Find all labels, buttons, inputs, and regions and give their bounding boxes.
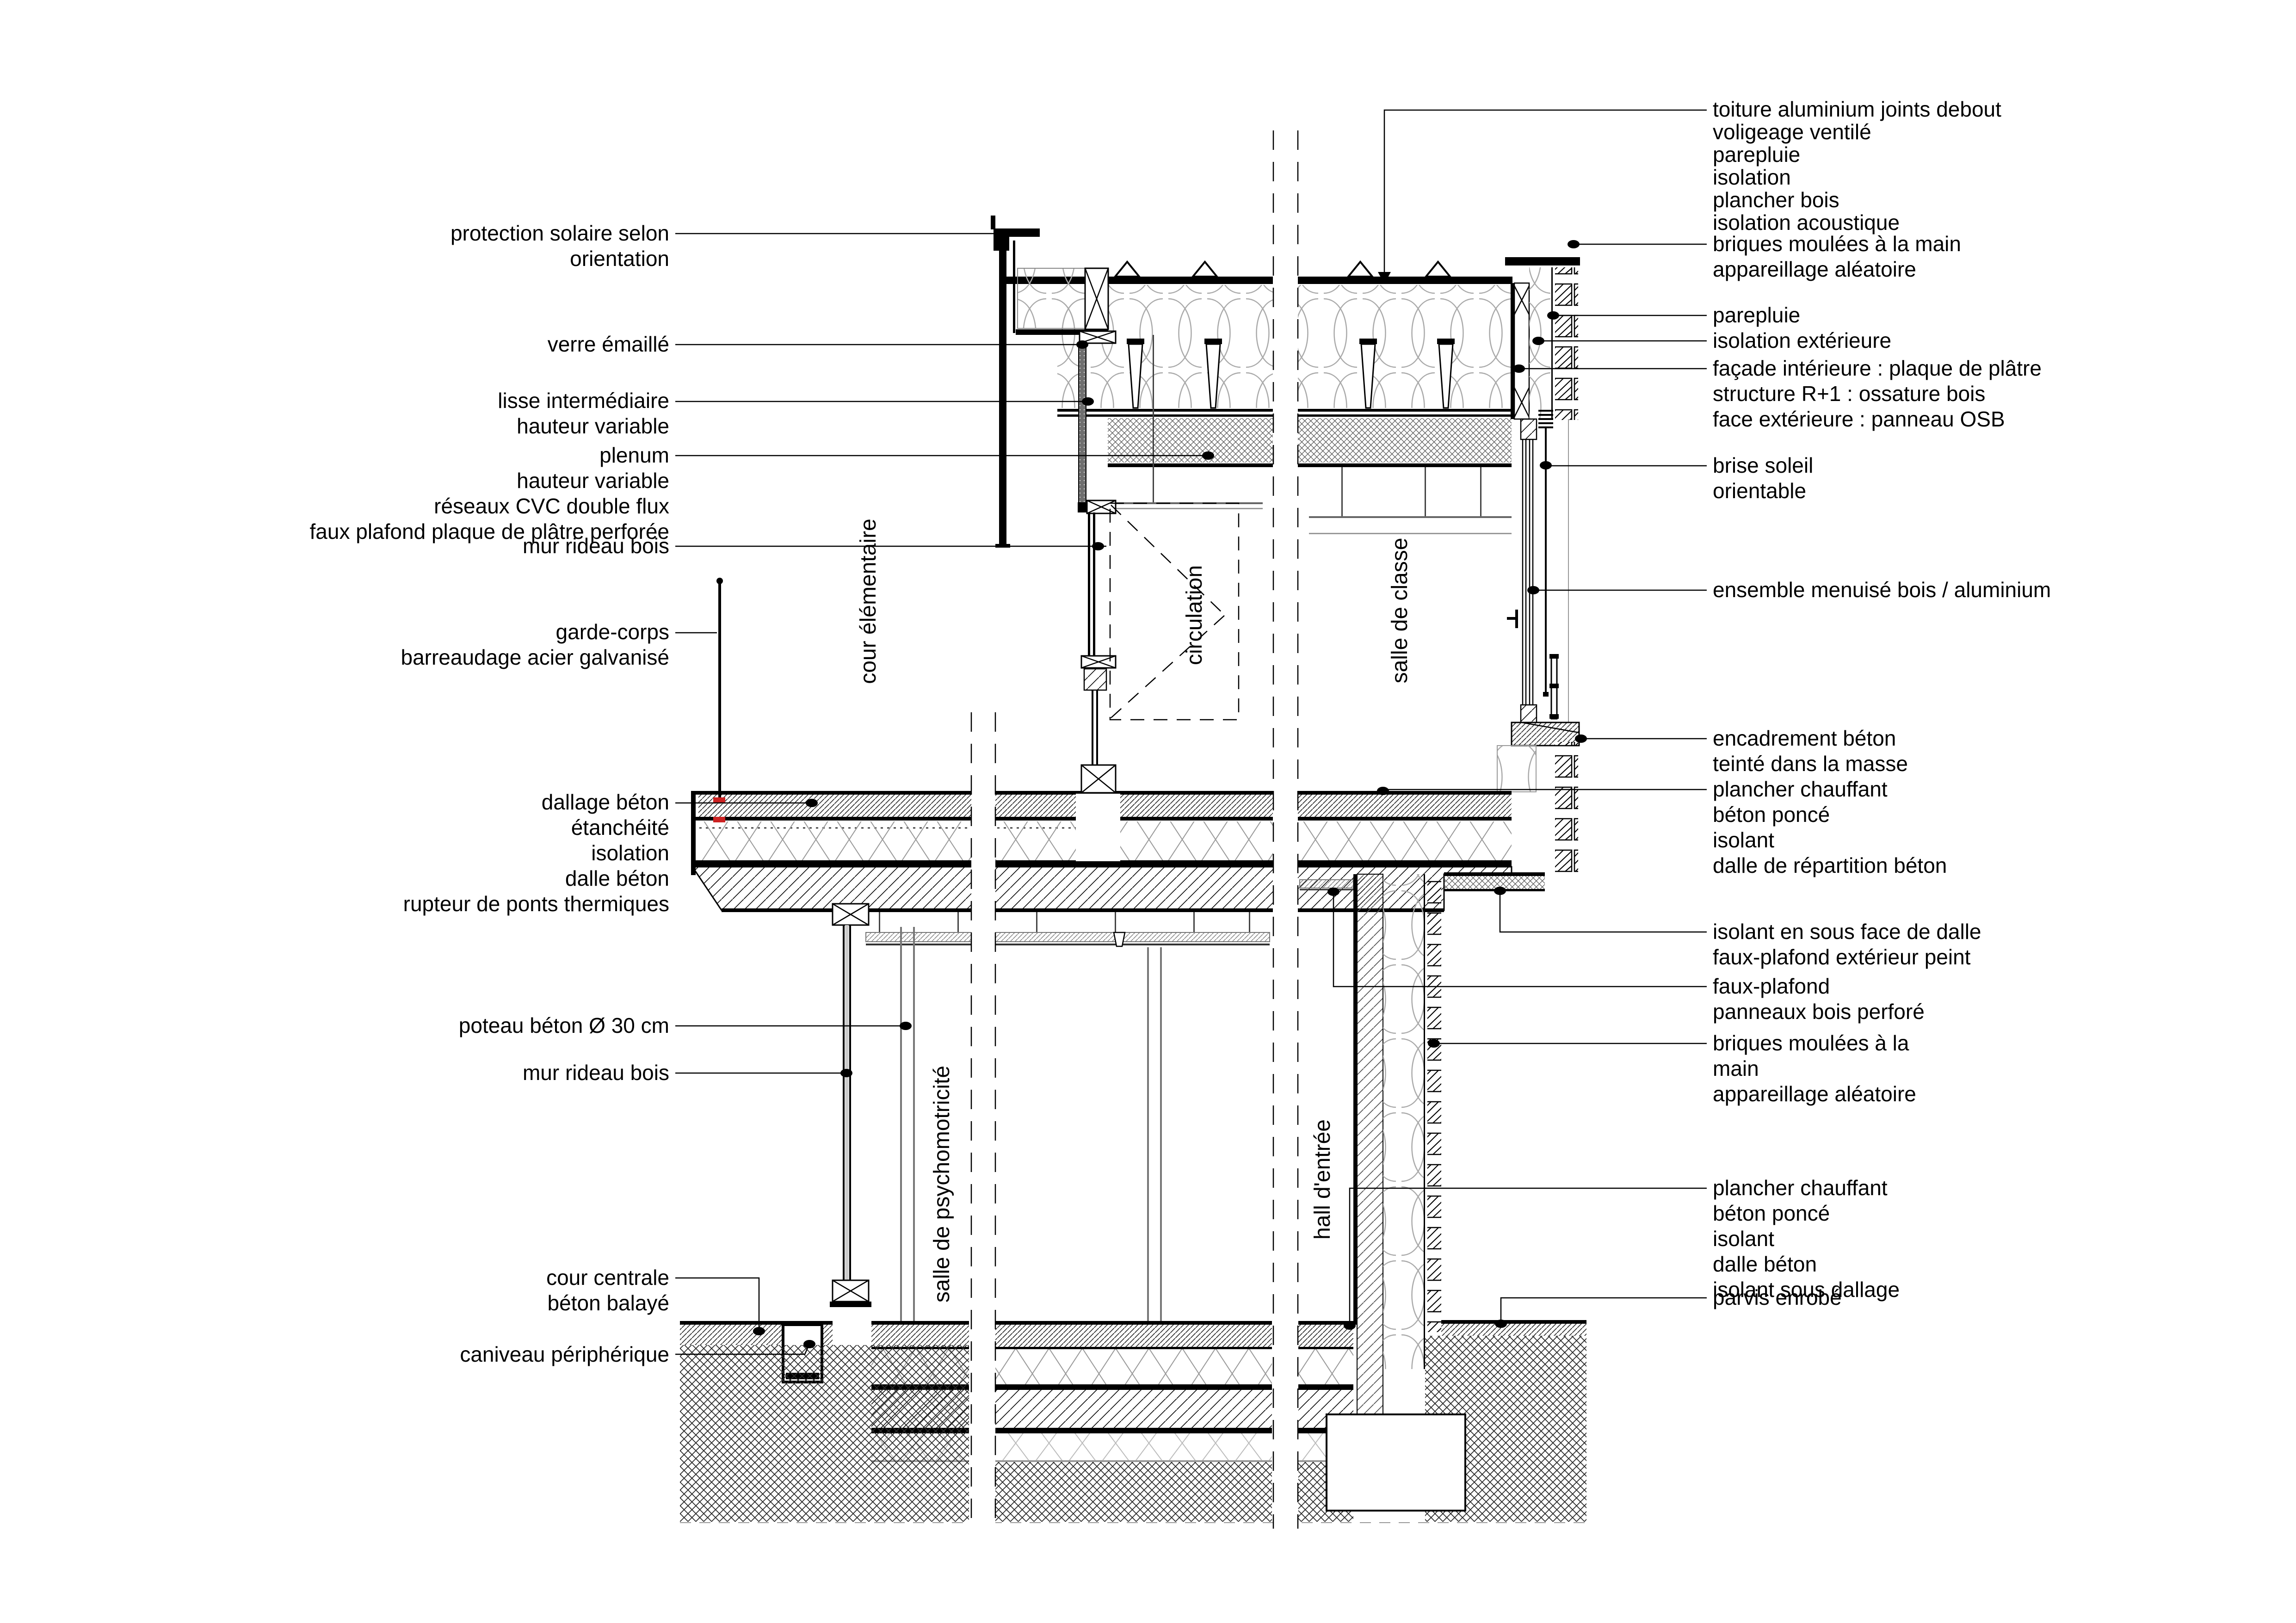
annotation-parepluie: parepluie bbox=[1713, 303, 1800, 327]
circulation-zone bbox=[1110, 503, 1239, 720]
annotation-line: briques moulées à la main bbox=[1713, 232, 1961, 256]
section-drawing bbox=[680, 130, 1586, 1529]
annotation-plancher-rdc: plancher chauffantbéton poncéisolantdall… bbox=[1713, 1176, 1900, 1302]
annotation-line: dalle de répartition béton bbox=[1713, 853, 1947, 877]
annotation-briques-haut: briques moulées à la mainappareillage al… bbox=[1713, 232, 1961, 281]
annotation-line: béton poncé bbox=[1713, 1201, 1830, 1225]
annotation-line: parepluie bbox=[1713, 303, 1800, 327]
room-label-circulation: circulation bbox=[1182, 565, 1207, 665]
annotation-line: caniveau périphérique bbox=[460, 1342, 669, 1366]
room-label-salle-de-psychomotricite: salle de psychomotricité bbox=[930, 1066, 954, 1302]
annotation-line: hauteur variable bbox=[517, 414, 669, 438]
annotation-line: protection solaire selon bbox=[451, 221, 669, 245]
annotation-line: dalle béton bbox=[565, 866, 669, 890]
annotation-line: garde-corps bbox=[556, 620, 669, 644]
annotation-protection-solaire: protection solaire selonorientation bbox=[451, 221, 669, 271]
ground-curtain-wall bbox=[830, 904, 871, 1307]
annotation-line: plancher bois bbox=[1713, 188, 1839, 212]
parvis-surface bbox=[1441, 1320, 1586, 1336]
annotation-isolation-ext: isolation extérieure bbox=[1713, 328, 1891, 352]
annotation-line: orientable bbox=[1713, 479, 1806, 503]
annotation-cour-centrale: cour centralebéton balayé bbox=[546, 1265, 669, 1315]
annotation-line: dallage béton bbox=[542, 790, 669, 814]
annotation-lisse-intermediaire: lisse intermédiairehauteur variable bbox=[498, 389, 669, 438]
annotation-line: isolant en sous face de dalle bbox=[1713, 919, 1981, 944]
annotation-line: lisse intermédiaire bbox=[498, 389, 669, 413]
annotation-line: faux-plafond extérieur peint bbox=[1713, 945, 1971, 969]
annotation-line: béton balayé bbox=[548, 1291, 669, 1315]
annotation-isolant-sous-face: isolant en sous face de dallefaux-plafon… bbox=[1713, 919, 1981, 969]
annotation-line: parepluie bbox=[1713, 142, 1800, 167]
annotation-line: faux-plafond bbox=[1713, 974, 1830, 998]
annotation-line: mur rideau bois bbox=[523, 534, 669, 558]
annotation-line: béton poncé bbox=[1713, 802, 1830, 827]
annotation-encadrement: encadrement bétonteinté dans la massepla… bbox=[1713, 726, 1947, 877]
annotation-toiture: toiture aluminium joints deboutvoligeage… bbox=[1713, 97, 2001, 235]
annotation-facade: façade intérieure : plaque de plâtrestru… bbox=[1713, 356, 2042, 431]
annotation-line: teinté dans la masse bbox=[1713, 752, 1908, 776]
annotation-line: isolant bbox=[1713, 1227, 1774, 1251]
annotation-line: main bbox=[1713, 1056, 1759, 1080]
annotation-line: ensemble menuisé bois / aluminium bbox=[1713, 578, 2051, 602]
annotation-line: isolation bbox=[1713, 165, 1791, 189]
annotation-faux-plafond: faux-plafondpanneaux bois perforé bbox=[1713, 974, 1925, 1024]
annotation-line: toiture aluminium joints debout bbox=[1713, 97, 2001, 121]
upper-floor-slab bbox=[691, 578, 1545, 912]
footing bbox=[1327, 1414, 1465, 1511]
annotation-garde-corps: garde-corpsbarreaudage acier galvanisé bbox=[401, 620, 669, 669]
annotation-line: verre émaillé bbox=[548, 332, 669, 356]
annotation-line: panneaux bois perforé bbox=[1713, 1000, 1925, 1024]
annotation-line: parvis enrobé bbox=[1713, 1285, 1842, 1309]
annotation-line: plancher chauffant bbox=[1713, 1176, 1888, 1200]
annotation-verre-emaille: verre émaillé bbox=[548, 332, 669, 356]
annotation-caniveau: caniveau périphérique bbox=[460, 1342, 669, 1366]
annotation-line: structure R+1 : ossature bois bbox=[1713, 382, 1985, 406]
annotation-line: isolation acoustique bbox=[1713, 210, 1900, 235]
annotations-left: protection solaire selonorientation verr… bbox=[310, 221, 669, 1366]
annotation-dallage: dallage bétonétanchéitéisolationdalle bé… bbox=[403, 790, 669, 916]
annotation-line: cour centrale bbox=[546, 1265, 669, 1290]
annotation-mur-rideau-bas: mur rideau bois bbox=[523, 1061, 669, 1085]
annotation-line: briques moulées à la bbox=[1713, 1031, 1909, 1055]
room-label-hall-entree: hall d'entrée bbox=[1310, 1119, 1335, 1240]
annotation-briques-bas: briques moulées à lamainappareillage alé… bbox=[1713, 1031, 1916, 1106]
annotation-line: isolation bbox=[591, 841, 669, 865]
annotations-right: toiture aluminium joints deboutvoligeage… bbox=[1713, 97, 2051, 1309]
annotation-line: mur rideau bois bbox=[523, 1061, 669, 1085]
annotation-poteau: poteau béton Ø 30 cm bbox=[459, 1013, 669, 1037]
brise-soleil-element bbox=[1538, 411, 1559, 719]
annotation-line: face extérieure : panneau OSB bbox=[1713, 407, 2005, 431]
annotation-brise-soleil: brise soleilorientable bbox=[1713, 453, 1813, 503]
annotation-line: isolation extérieure bbox=[1713, 328, 1891, 352]
annotation-line: brise soleil bbox=[1713, 453, 1813, 477]
annotation-line: hauteur variable bbox=[517, 469, 669, 493]
annotation-line: voligeage ventilé bbox=[1713, 120, 1871, 144]
garde-corps-element bbox=[713, 578, 725, 822]
annotation-plenum: plenumhauteur variableréseaux CVC double… bbox=[310, 443, 669, 543]
ground-right-wall bbox=[1353, 874, 1441, 1415]
annotation-line: appareillage aléatoire bbox=[1713, 1082, 1916, 1106]
annotation-parvis: parvis enrobé bbox=[1713, 1285, 1842, 1309]
annotation-line: appareillage aléatoire bbox=[1713, 257, 1916, 281]
annotation-line: dalle béton bbox=[1713, 1252, 1817, 1276]
annotation-ensemble-menuise: ensemble menuisé bois / aluminium bbox=[1713, 578, 2051, 602]
annotation-line: plenum bbox=[599, 443, 669, 467]
room-label-cour-elementaire: cour élémentaire bbox=[856, 518, 881, 684]
annotation-line: réseaux CVC double flux bbox=[434, 494, 669, 518]
architectural-section-drawing: protection solaire selonorientation verr… bbox=[0, 0, 2296, 1623]
annotation-line: barreaudage acier galvanisé bbox=[401, 645, 669, 669]
annotation-line: rupteur de ponts thermiques bbox=[403, 892, 669, 916]
annotation-line: isolant bbox=[1713, 828, 1774, 852]
annotation-line: poteau béton Ø 30 cm bbox=[459, 1013, 669, 1037]
annotation-line: orientation bbox=[570, 247, 669, 271]
annotation-line: façade intérieure : plaque de plâtre bbox=[1713, 356, 2042, 380]
annotation-line: encadrement béton bbox=[1713, 726, 1896, 750]
annotation-mur-rideau-haut: mur rideau bois bbox=[523, 534, 669, 558]
room-label-salle-de-classe: salle de classe bbox=[1388, 538, 1412, 684]
annotation-line: étanchéité bbox=[571, 815, 669, 839]
annotation-line: plancher chauffant bbox=[1713, 777, 1888, 801]
